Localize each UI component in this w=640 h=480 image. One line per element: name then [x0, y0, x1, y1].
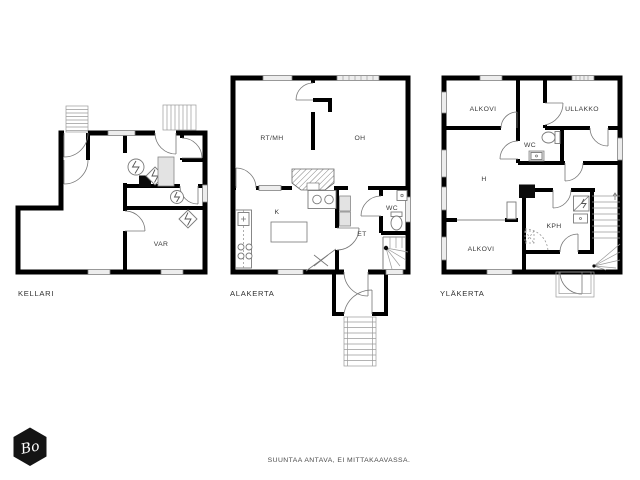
windows — [259, 76, 411, 275]
fireplace-icon — [292, 169, 334, 190]
room-label-wc-alakerta: WC — [386, 205, 398, 212]
alakerta-plan: RT/MH OH K ET WC ALAKERTA — [230, 76, 411, 367]
room-label-oh: OH — [355, 135, 366, 142]
room-label-k: K — [275, 209, 280, 216]
room-label-alkovi-top: ALKOVI — [470, 106, 497, 113]
room-label-var: VAR — [154, 241, 169, 248]
logo: Bo — [14, 428, 47, 467]
toilet-icon — [391, 212, 402, 230]
wardrobe-icon — [340, 196, 351, 226]
room-label-et: ET — [357, 231, 366, 238]
appliance-reservation-icon — [525, 229, 548, 252]
room-label-h: H — [481, 176, 486, 183]
disclaimer-note: SUUNTAA ANTAVA, EI MITTAKAAVASSA. — [268, 457, 411, 464]
exterior-stairs-icon — [344, 317, 376, 366]
toilet-icon — [542, 132, 560, 144]
exterior-stairs-icon — [163, 105, 196, 130]
hall-niche — [507, 202, 516, 219]
dining-table-icon — [271, 222, 307, 242]
room-label-rtmh: RT/MH — [260, 135, 283, 142]
washbasin-icon — [529, 151, 544, 161]
staircase-icon — [592, 193, 620, 270]
plan-title-kellari: KELLARI — [18, 289, 54, 298]
water-heater-icon — [171, 191, 184, 204]
room-label-alkovi-bottom: ALKOVI — [468, 246, 495, 253]
room-label-ullakko: ULLAKKO — [565, 106, 599, 113]
plan-title-alakerta: ALAKERTA — [230, 289, 275, 298]
windows — [88, 131, 208, 275]
hot-water-tank-icon — [158, 157, 174, 186]
ylakerta-plan: ALKOVI ULLAKKO WC H KPH ALKOVI YLÄKERTA — [440, 76, 623, 299]
chimney — [519, 185, 535, 199]
exterior-stairs-icon — [66, 106, 88, 132]
washbasin-icon — [397, 191, 407, 201]
balcony-icon — [556, 272, 594, 297]
corner-cabinet-icon — [306, 249, 336, 271]
plan-title-ylakerta: YLÄKERTA — [440, 289, 485, 298]
kellari-plan: VAR KELLARI — [18, 105, 208, 298]
floorplan-sheet: VAR KELLARI — [0, 0, 640, 480]
shower-icon — [574, 196, 590, 211]
room-label-kph: KPH — [546, 223, 561, 230]
double-sink-icon — [308, 191, 336, 209]
room-label-wc-ylakerta: WC — [524, 142, 536, 149]
winder-staircase-icon — [383, 237, 408, 270]
electric-heater-icon — [179, 210, 197, 228]
floorplan-drawing: VAR KELLARI — [0, 0, 640, 480]
washing-machine-icon — [128, 159, 144, 175]
washbasin-icon — [574, 214, 588, 223]
